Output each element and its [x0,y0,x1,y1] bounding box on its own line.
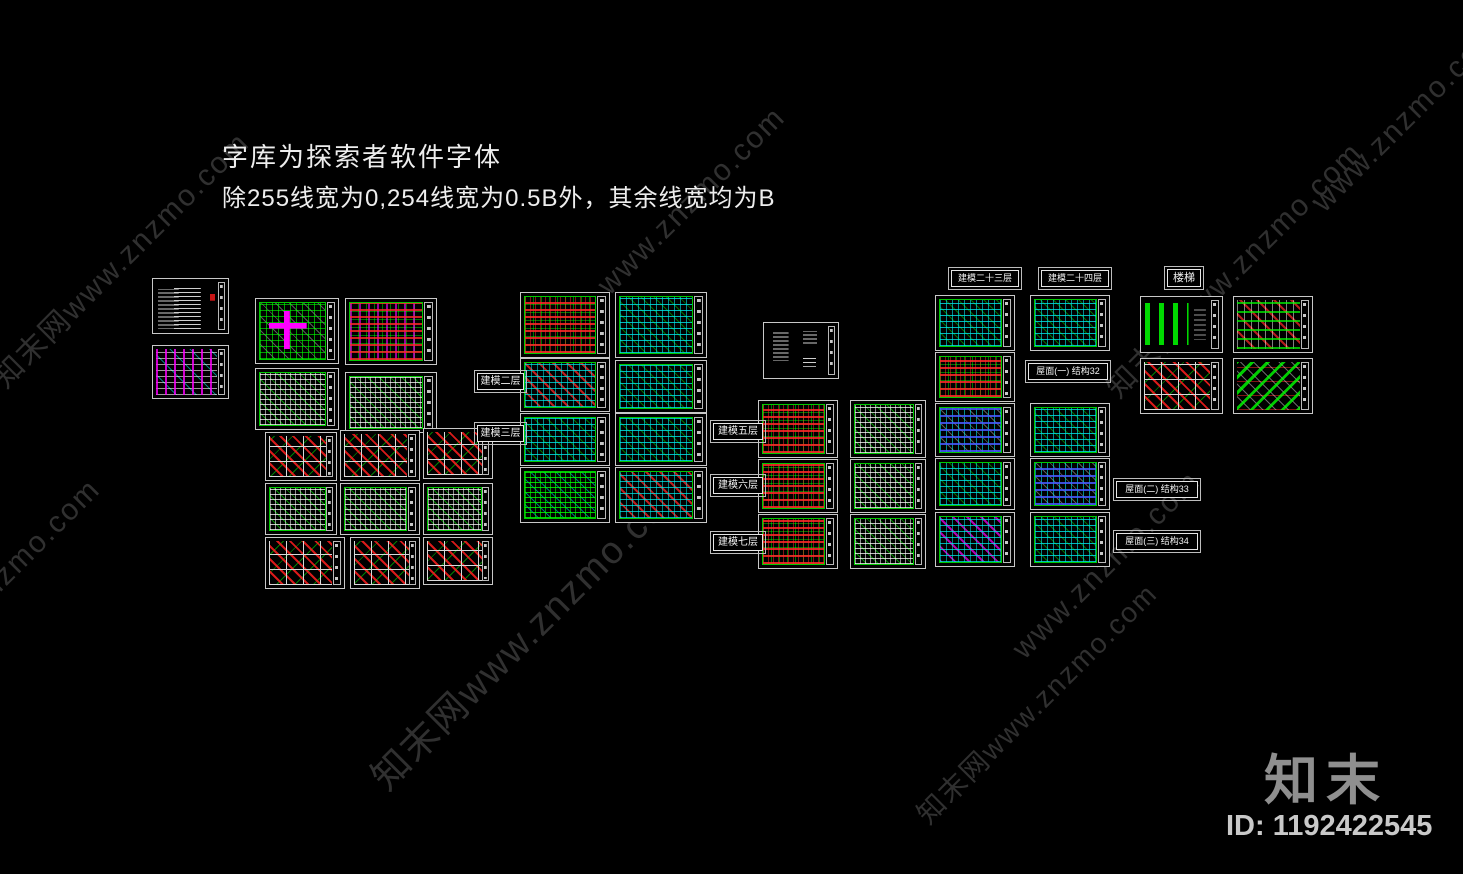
sheet-titleblock [409,541,416,585]
drawing-sheet-s11[interactable] [340,483,420,535]
sheet-titleblock [1003,299,1011,347]
sheet-titleblock [218,349,226,395]
sheet-label: 建模二十四层 [1041,270,1109,287]
sheet-titleblock [327,372,335,426]
sheet-content [939,462,1002,506]
drawing-sheet-s13[interactable] [265,537,345,589]
drawing-sheet-s08[interactable] [340,430,420,481]
sheet-titleblock [333,541,341,585]
sheet-titleblock [1301,300,1309,349]
sheet-titleblock [218,282,226,330]
sheet-titleblock [424,302,433,361]
drawing-sheet-m2[interactable] [615,292,707,358]
sheet-content [524,296,596,354]
sheet-titleblock [1301,362,1309,410]
drawing-sheet-s12[interactable] [423,483,493,535]
plot-note: 字库为探索者软件字体 除255线宽为0,254线宽为0.5B外，其余线宽均为B [222,144,775,212]
sheet-content [762,518,825,565]
sheet-titleblock [1003,462,1011,506]
sheet-content [1237,362,1300,410]
sheet-titleblock [597,471,606,519]
drawing-sheet-m6[interactable] [615,413,707,466]
sheet-titleblock [482,541,489,581]
note-line-2: 除255线宽为0,254线宽为0.5B外，其余线宽均为B [222,186,775,212]
drawing-sheet-s15[interactable] [423,537,493,585]
sheet-content [427,432,482,475]
sheet-label: 楼梯 [1167,269,1201,287]
sheet-titleblock [408,487,416,531]
sheet-titleblock [828,326,835,375]
drawing-sheet-r1[interactable] [758,400,838,458]
drawing-sheet-b5[interactable] [1030,512,1110,567]
sheet-titleblock [694,296,703,354]
drawing-sheet-s02[interactable] [152,345,229,399]
watermark-text: www.znzmo.com [0,472,108,674]
watermark-text: www.znzmo.com [1306,17,1463,219]
sheet-content [349,376,423,429]
sheet-content [619,364,693,409]
sheet-content [939,299,1002,347]
drawing-sheet-s03[interactable] [255,298,339,364]
sheet-content [269,541,332,585]
sheet-content [524,362,596,408]
sheet-content [1034,516,1097,563]
drawing-sheet-f1[interactable] [1140,296,1223,353]
sheet-label: 建模五层 [713,423,763,440]
sheet-content [619,296,693,354]
sheet-titleblock [1098,407,1106,453]
drawing-sheet-r6[interactable] [850,514,926,569]
drawing-sheet-r3[interactable] [758,459,838,513]
sheet-titleblock [826,404,834,454]
drawing-sheet-m8[interactable] [615,467,707,523]
sheet-content [939,356,1002,398]
sheet-label: 建模二层 [477,373,524,390]
drawing-sheet-m3[interactable] [520,358,610,412]
cad-model-canvas: 知末网www.znzmo.comwww.znzmo.com知末网www.znzm… [0,0,1463,874]
drawing-sheet-r4[interactable] [850,459,926,513]
resource-id: ID: 1192422545 [1226,810,1432,843]
drawing-sheet-a4[interactable] [935,458,1015,510]
sheet-content [1034,407,1097,453]
sheet-content [344,487,407,531]
sheet-content [269,487,326,531]
drawing-sheet-a5[interactable] [935,512,1015,567]
sheet-titleblock [1003,356,1011,398]
sheet-content [156,282,217,330]
sheet-label: 建模三层 [477,425,524,442]
sheet-titleblock [326,436,333,477]
sheet-content [259,302,326,360]
sheet-titleblock [1098,462,1106,506]
sheet-titleblock [826,518,834,565]
sheet-titleblock [1211,362,1219,410]
drawing-sheet-s01[interactable] [152,278,229,334]
drawing-sheet-f4[interactable] [1233,358,1313,414]
sheet-titleblock [482,487,489,531]
sheet-label: 建模六层 [713,477,763,494]
drawing-sheet-f2[interactable] [1233,296,1313,353]
sheet-titleblock [408,434,416,477]
sheet-content [524,417,596,462]
sheet-content [619,417,693,462]
sheet-titleblock [915,518,922,565]
sheet-content [939,407,1002,453]
sheet-content [762,404,825,454]
sheet-titleblock [1003,407,1011,453]
sheet-label: 屋面(一) 结构32 [1028,363,1108,380]
sheet-content [349,302,423,361]
drawing-sheet-s10[interactable] [265,483,337,535]
drawing-sheet-a2[interactable] [935,352,1015,402]
sheet-content [524,471,596,519]
sheet-content [854,404,914,454]
sheet-titleblock [694,417,703,462]
sheet-titleblock [597,362,606,408]
sheet-content [767,326,827,375]
sheet-content [427,487,482,531]
sheet-titleblock [1003,516,1011,563]
sheet-content [344,434,407,477]
drawing-sheet-s07[interactable] [265,432,337,481]
drawing-sheet-f3[interactable] [1140,358,1223,414]
sheet-content [1144,300,1210,349]
sheet-titleblock [326,487,333,531]
sheet-content [619,471,693,519]
sheet-content [427,541,482,581]
drawing-sheet-b1[interactable] [1030,295,1110,351]
sheet-titleblock [1098,299,1106,347]
sheet-titleblock [327,302,335,360]
drawing-sheet-m1[interactable] [520,292,610,358]
sheet-content [269,436,326,477]
sheet-titleblock [424,376,433,429]
sheet-titleblock [1098,516,1106,563]
drawing-sheet-b3[interactable] [1030,403,1110,457]
drawing-sheet-n1[interactable] [763,322,839,379]
sheet-content [762,463,825,509]
drawing-sheet-b4[interactable] [1030,458,1110,510]
sheet-label: 建模七层 [713,534,763,551]
sheet-content [854,463,914,509]
drawing-sheet-r5[interactable] [758,514,838,569]
drawing-sheet-m5[interactable] [520,413,610,466]
drawing-sheet-s06[interactable] [345,372,437,433]
sheet-label: 建模二十三层 [951,270,1019,287]
note-line-1: 字库为探索者软件字体 [222,144,775,170]
sheet-content [1237,300,1300,349]
sheet-titleblock [694,471,703,519]
sheet-label: 屋面(二) 结构33 [1116,481,1198,498]
sheet-content [1144,362,1210,410]
sheet-content [854,518,914,565]
sheet-content [1034,299,1097,347]
drawing-sheet-s14[interactable] [350,537,420,589]
drawing-sheet-a1[interactable] [935,295,1015,351]
sheet-titleblock [597,296,606,354]
drawing-sheet-m7[interactable] [520,467,610,523]
sheet-titleblock [915,463,922,509]
sheet-titleblock [694,364,703,409]
drawing-sheet-s05[interactable] [255,368,339,430]
sheet-titleblock [597,417,606,462]
sheet-titleblock [826,463,834,509]
zhimo-logo: 知末 [1264,736,1388,815]
sheet-content [354,541,409,585]
sheet-content [156,349,217,395]
sheet-content [1034,462,1097,506]
sheet-titleblock [915,404,922,454]
sheet-content [259,372,326,426]
drawing-sheet-a3[interactable] [935,403,1015,457]
watermark-text: 知末网www.znzmo.com [907,573,1166,832]
drawing-sheet-r2[interactable] [850,400,926,458]
sheet-titleblock [1211,300,1219,349]
sheet-content [939,516,1002,563]
drawing-sheet-m4[interactable] [615,360,707,413]
sheet-label: 屋面(三) 结构34 [1116,533,1198,550]
drawing-sheet-s04[interactable] [345,298,437,365]
